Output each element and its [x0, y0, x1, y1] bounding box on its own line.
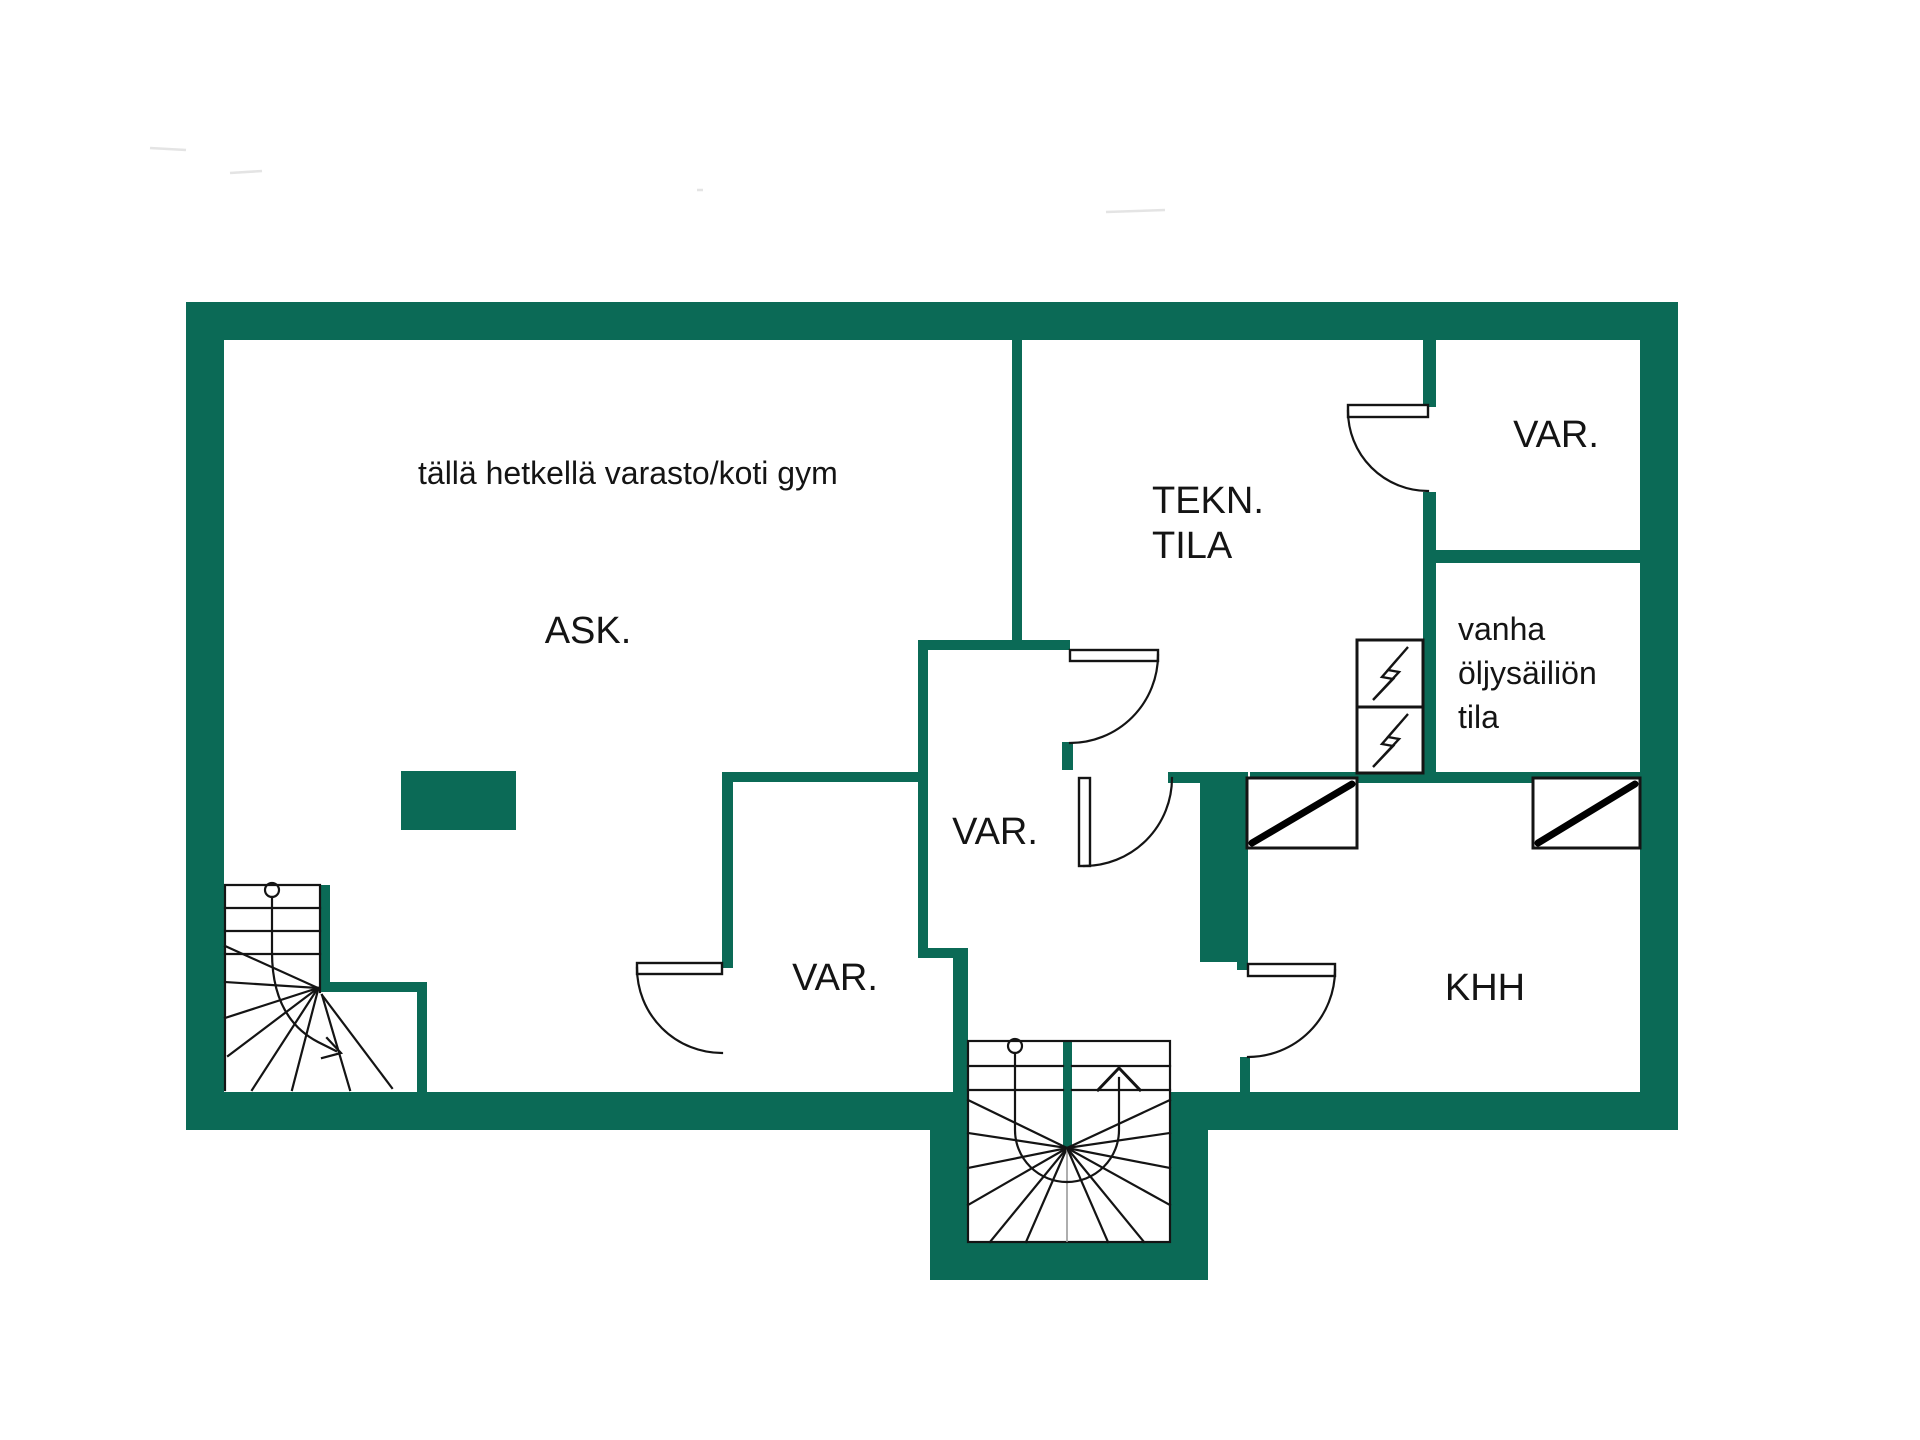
outer-wall-bottom-right	[1208, 1092, 1678, 1130]
wall-nook-top	[320, 982, 427, 992]
wall-ask-tekn	[1012, 340, 1022, 650]
doors	[637, 405, 1428, 1057]
wall-closet-left	[918, 640, 928, 958]
hatch-window-left	[1247, 778, 1357, 848]
ask-room-note: tällä hetkellä varasto/koti gym	[418, 455, 838, 491]
floor-plan-svg: tällä hetkellä varasto/koti gym ASK. TEK…	[0, 0, 1920, 1440]
wall-lower-var-left	[722, 772, 733, 968]
door-leaf	[1070, 650, 1158, 661]
door-var-lower	[637, 963, 722, 1053]
wall-tekn-oilroom	[1423, 492, 1436, 772]
door-swing-arc	[1084, 778, 1172, 866]
door-swing-arc	[1348, 411, 1428, 491]
electrical-panel	[1357, 640, 1423, 773]
door-swing-arc	[637, 968, 722, 1053]
door-leaf	[1079, 778, 1090, 866]
outer-wall-left	[186, 302, 224, 1130]
room-label-ask: ASK.	[545, 610, 632, 652]
outer-wall-right	[1640, 302, 1678, 1130]
wall-stair-spine	[1063, 1041, 1072, 1147]
room-label-tekn-line1: TEKN.	[1152, 480, 1264, 522]
door-leaf	[1348, 405, 1428, 417]
room-label-var-lower: VAR.	[792, 957, 878, 999]
door-corridor	[1079, 778, 1172, 866]
door-closet-north	[1070, 650, 1158, 743]
stairwell-protrusion-bottom-wall	[930, 1242, 1208, 1280]
wall-khh-door-jamb	[1237, 962, 1248, 970]
door-leaf	[1248, 964, 1335, 976]
outer-wall-top	[186, 302, 1678, 340]
door-swing-arc	[1248, 970, 1335, 1057]
wall-tekn-var-upper-stub	[1423, 340, 1436, 407]
room-label-oilroom-line2: öljysäiliön	[1458, 655, 1597, 691]
wall-lower-var-top	[722, 772, 918, 782]
hatch-windows	[1247, 778, 1640, 848]
door-khh	[1248, 964, 1335, 1057]
floor-plan-page: tällä hetkellä varasto/koti gym ASK. TEK…	[0, 0, 1920, 1440]
wall-closet-top	[918, 640, 1070, 650]
door-var-top-right	[1348, 405, 1428, 491]
wall-var-oilroom	[1430, 550, 1640, 563]
wall-closet-right-stub	[1062, 742, 1073, 770]
door-swing-arc	[1070, 655, 1158, 743]
room-label-var-closet: VAR.	[952, 811, 1038, 853]
wall-khh-column	[1200, 772, 1248, 962]
wall-left-stair-stub	[320, 885, 330, 992]
wall-nook-right	[417, 982, 427, 1092]
wall-khh-door-stub	[1240, 1057, 1250, 1092]
chimney-pillar	[401, 771, 516, 830]
door-leaf	[637, 963, 722, 974]
room-label-khh: KHH	[1445, 967, 1525, 1009]
wall-stairhall-left	[953, 948, 968, 1092]
scan-artifacts	[150, 148, 1165, 212]
room-label-oilroom-line1: vanha	[1458, 611, 1545, 647]
room-label-oilroom-line3: tila	[1458, 699, 1499, 735]
room-label-var-top-right: VAR.	[1513, 414, 1599, 456]
room-label-tekn-line2: TILA	[1152, 525, 1233, 567]
hatch-window-right	[1533, 778, 1640, 848]
outer-wall-bottom-left	[186, 1092, 930, 1130]
